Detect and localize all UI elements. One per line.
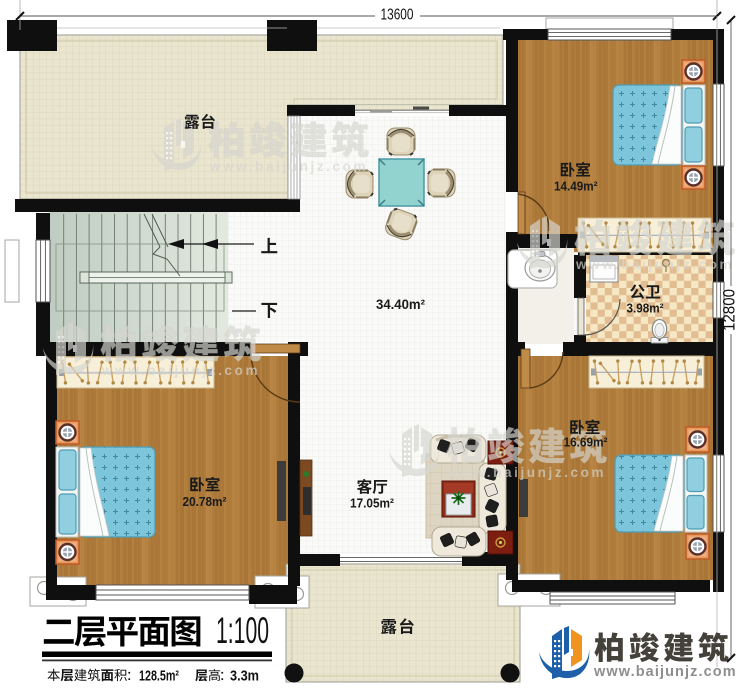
svg-text:13600: 13600 <box>381 7 414 24</box>
svg-text:12800: 12800 <box>721 289 739 331</box>
svg-text:34.40m²: 34.40m² <box>376 296 425 312</box>
svg-text:16.69m²: 16.69m² <box>564 435 608 450</box>
svg-text:www.baijunjz.com: www.baijunjz.com <box>101 363 260 378</box>
svg-text:www.baijunjz.com: www.baijunjz.com <box>593 664 737 680</box>
svg-text:20.78m²: 20.78m² <box>183 494 227 509</box>
svg-text:128.5m²: 128.5m² <box>139 669 179 685</box>
svg-text:www.baijunjz.com: www.baijunjz.com <box>575 257 734 272</box>
svg-text:3.3m: 3.3m <box>230 669 259 685</box>
svg-text:www.baijunjz.com: www.baijunjz.com <box>209 159 368 174</box>
svg-text:1:100: 1:100 <box>216 610 269 651</box>
svg-text:14.49m²: 14.49m² <box>554 179 598 194</box>
svg-text:17.05m²: 17.05m² <box>350 496 394 511</box>
svg-text:3.98m²: 3.98m² <box>627 301 664 316</box>
svg-text:www.baijunjz.com: www.baijunjz.com <box>447 465 606 480</box>
